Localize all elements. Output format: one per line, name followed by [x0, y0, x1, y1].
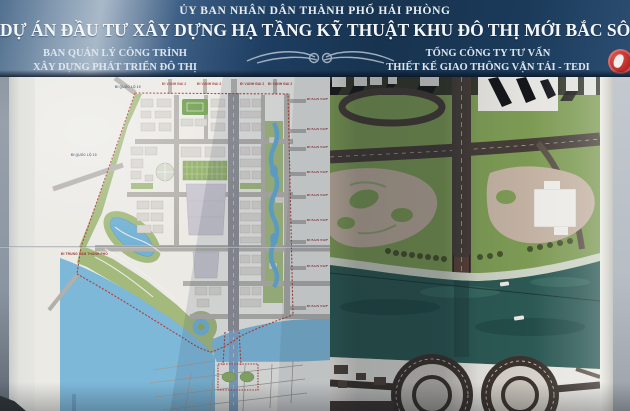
project-title: DỰ ÁN ĐẦU TƯ XÂY DỰNG HẠ TẦNG KỸ THUẬT K…: [0, 20, 630, 41]
billboard-left-margin: [9, 77, 35, 411]
road-label-ring2: ĐI VÀNH ĐAI 2: [268, 83, 292, 86]
plan-blue-road-mark: [72, 394, 76, 411]
committee-title: ỦY BAN NHÂN DÂN THÀNH PHỐ HẢI PHÒNG: [0, 5, 630, 17]
tedi-logo-icon: [608, 49, 630, 74]
org-right: TỔNG CÔNG TY TƯ VẤN THIẾT KẾ GIAO THÔNG …: [368, 47, 608, 74]
road-label-east: ĐI KCN VSIP: [307, 194, 328, 197]
plan-formal-garden: [183, 161, 227, 180]
road-label-ql10: ĐI QUỐC LỘ 10: [71, 154, 97, 157]
interchange-render-panel: [330, 77, 600, 411]
org-left: BAN QUẢN LÝ CÔNG TRÌNH XÂY DỰNG PHÁT TRI…: [10, 47, 220, 74]
road-label-east: ĐI KCN VSIP: [307, 219, 328, 222]
road-label-east: ĐI KCN VSIP: [307, 98, 328, 101]
master-plan-drawing: [35, 77, 330, 411]
plan-circular-plaza: [156, 163, 174, 181]
project-billboard-photo: ĐI VÀNH ĐAI 2 ĐI VÀNH ĐAI 2 ĐI VÀNH ĐAI …: [0, 0, 630, 411]
road-label-east: ĐI KCN VSIP: [307, 265, 328, 268]
interchange-render-drawing: [330, 77, 600, 411]
org-right-line1: TỔNG CÔNG TY TƯ VẤN: [368, 47, 608, 61]
org-left-line1: BAN QUẢN LÝ CÔNG TRÌNH: [10, 47, 220, 61]
plan-sports-field: [182, 99, 208, 115]
billboard-seam: [0, 246, 330, 248]
road-label-east: ĐI KCN VSIP: [307, 128, 328, 131]
billboard-header: ỦY BAN NHÂN DÂN THÀNH PHỐ HẢI PHÒNG DỰ Á…: [0, 0, 630, 77]
road-label-ring2: ĐI VÀNH ĐAI 2: [162, 83, 186, 86]
billboard-panel-edge: [600, 77, 613, 411]
road-label-east: ĐI KCN VSIP: [307, 171, 328, 174]
road-label-east: ĐI KCN VSIP: [307, 239, 328, 242]
org-right-line2: THIẾT KẾ GIAO THÔNG VẬN TẢI - TEDI: [368, 61, 608, 75]
plan-central-axis-road: [228, 93, 239, 411]
road-label-city-center: ĐI TRUNG TÂM THÀNH PHỐ: [61, 253, 108, 256]
road-label-ring2: ĐI VÀNH ĐAI 2: [240, 83, 264, 86]
org-left-line2: XÂY DỰNG PHÁT TRIỂN ĐÔ THỊ: [10, 61, 220, 75]
road-label-east: ĐI KCN VSIP: [307, 305, 328, 308]
master-plan-map-panel: ĐI VÀNH ĐAI 2 ĐI VÀNH ĐAI 2 ĐI VÀNH ĐAI …: [35, 77, 330, 411]
photo-right-edge: [613, 77, 630, 411]
road-label-ql10: ĐI QUỐC LỘ 10: [115, 86, 141, 89]
road-label-east: ĐI KCN VSIP: [307, 146, 328, 149]
road-label-ring2: ĐI VÀNH ĐAI 2: [197, 83, 221, 86]
